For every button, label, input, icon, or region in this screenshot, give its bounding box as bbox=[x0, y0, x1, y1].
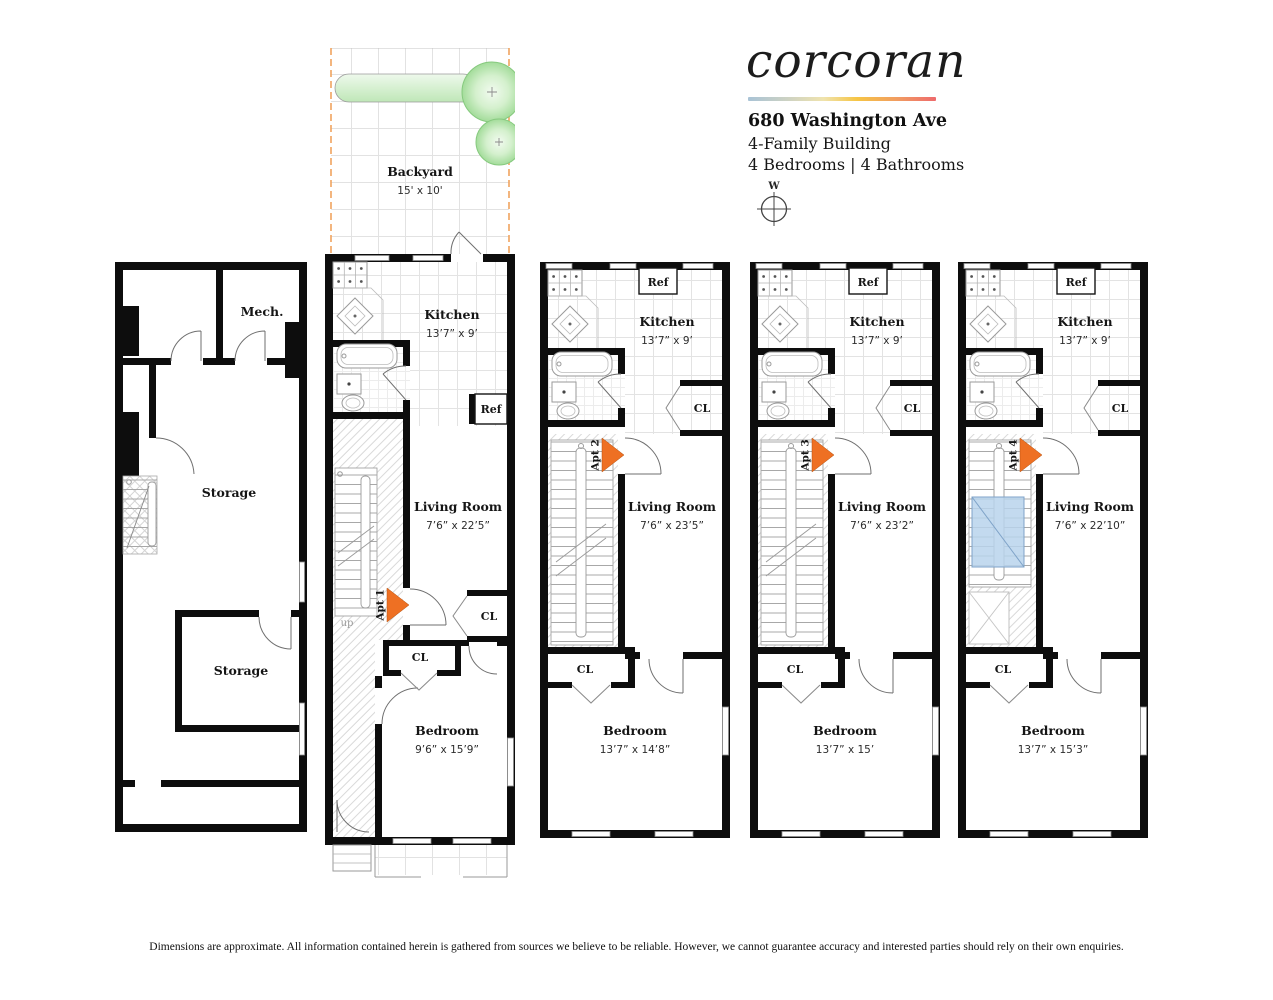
closet-label: CL bbox=[904, 402, 921, 415]
bedroom-dims: 13’7” x 15’3” bbox=[1018, 744, 1089, 756]
kitchen-dims: 13’7” x 9’ bbox=[851, 335, 903, 347]
living-label: Living Room bbox=[414, 499, 502, 514]
entry-marker: Apt 4 bbox=[1008, 438, 1043, 472]
stoop bbox=[333, 845, 371, 871]
bedroom-label: Bedroom bbox=[813, 723, 877, 738]
washbasin-icon bbox=[337, 374, 361, 394]
ref-label: Ref bbox=[858, 276, 880, 289]
closet-label: CL bbox=[787, 663, 804, 676]
living-dims: 7’6” x 23’5” bbox=[640, 520, 704, 532]
kitchen-dims: 13’7” x 9’ bbox=[641, 335, 693, 347]
washbasin-icon bbox=[970, 382, 994, 402]
bedroom-dims: 13’7” x 14’8” bbox=[600, 744, 671, 756]
bathtub-icon bbox=[552, 352, 612, 376]
floorplan-apt2: Ref Apt 2 bbox=[540, 262, 730, 838]
backyard-dims: 15' x 10' bbox=[397, 185, 442, 197]
staircase bbox=[335, 468, 377, 616]
bedroom-dims: 13’7” x 15’ bbox=[816, 744, 874, 756]
living-label: Living Room bbox=[1046, 499, 1134, 514]
backyard: Backyard 15' x 10' bbox=[331, 48, 515, 261]
mech-label: Mech. bbox=[241, 304, 284, 319]
kitchen-label: Kitchen bbox=[849, 314, 904, 329]
porch bbox=[375, 845, 507, 877]
brand-gradient-bar bbox=[748, 97, 936, 101]
listing-header: 680 Washington Ave 4-Family Building 4 B… bbox=[748, 111, 964, 176]
tree-icon bbox=[462, 62, 515, 122]
entry-marker: Apt 1 bbox=[375, 588, 410, 622]
bathtub-icon bbox=[970, 352, 1030, 376]
washbasin-icon bbox=[762, 382, 786, 402]
living-dims: 7’6” x 22’5” bbox=[426, 520, 490, 532]
brand-logo: corcoran bbox=[746, 34, 966, 89]
compass-icon: W bbox=[753, 178, 797, 228]
kitchen-label: Kitchen bbox=[639, 314, 694, 329]
toilet-icon bbox=[557, 403, 579, 419]
stove-icon bbox=[758, 270, 792, 296]
bathtub-icon bbox=[337, 344, 397, 368]
ref-label: Ref bbox=[648, 276, 670, 289]
planter bbox=[335, 74, 477, 102]
entry-marker: Apt 2 bbox=[590, 438, 625, 472]
bedroom-dims: 9’6” x 15’9” bbox=[415, 744, 479, 756]
stove-icon bbox=[333, 262, 367, 288]
stove-icon bbox=[966, 270, 1000, 296]
closet-label: CL bbox=[412, 651, 429, 664]
kitchen-dims: 13’7” x 9’ bbox=[426, 328, 478, 340]
bedroom-label: Bedroom bbox=[603, 723, 667, 738]
kitchen-label: Kitchen bbox=[1057, 314, 1112, 329]
bedroom-label: Bedroom bbox=[415, 723, 479, 738]
closet-label: CL bbox=[995, 663, 1012, 676]
living-label: Living Room bbox=[838, 499, 926, 514]
floorplan-cellar: Mech. Storage Storage bbox=[115, 262, 307, 832]
under-stair-closet bbox=[969, 592, 1009, 644]
backyard-label: Backyard bbox=[387, 164, 453, 179]
closet-label: CL bbox=[694, 402, 711, 415]
floorplan-apt3: Ref Apt 3 bbox=[750, 262, 940, 838]
floorplan-page: corcoran 680 Washington Ave 4-Family Bui… bbox=[0, 0, 1273, 1000]
toilet-icon bbox=[767, 403, 789, 419]
stairs-up-label: up bbox=[341, 618, 354, 629]
staircase bbox=[123, 476, 157, 554]
bedroom-label: Bedroom bbox=[1021, 723, 1085, 738]
apt1-entry-label: Apt 1 bbox=[375, 589, 387, 621]
svg-text:W: W bbox=[767, 181, 780, 192]
building-type: 4-Family Building bbox=[748, 134, 964, 153]
floorplan-apt4: Ref bbox=[958, 262, 1148, 838]
entry-marker: Apt 3 bbox=[800, 438, 835, 472]
living-label: Living Room bbox=[628, 499, 716, 514]
apt3-entry-label: Apt 3 bbox=[800, 439, 812, 471]
apt2-entry-label: Apt 2 bbox=[590, 439, 602, 471]
washbasin-icon bbox=[552, 382, 576, 402]
closet-label: CL bbox=[481, 610, 498, 623]
rooms-summary: 4 Bedrooms | 4 Bathrooms bbox=[748, 155, 964, 174]
bathtub-icon bbox=[762, 352, 822, 376]
living-dims: 7’6” x 23’2” bbox=[850, 520, 914, 532]
apt4-entry-label: Apt 4 bbox=[1008, 439, 1020, 471]
closet-label: CL bbox=[577, 663, 594, 676]
floorplan-apt1: Backyard 15' x 10' bbox=[325, 48, 515, 880]
closet-label: CL bbox=[1112, 402, 1129, 415]
toilet-icon bbox=[975, 403, 997, 419]
living-dims: 7’6” x 22’10” bbox=[1055, 520, 1126, 532]
toilet-icon bbox=[342, 395, 364, 411]
storage-lower-label: Storage bbox=[214, 663, 269, 678]
address: 680 Washington Ave bbox=[748, 111, 964, 131]
storage-upper-label: Storage bbox=[202, 485, 257, 500]
ref-label: Ref bbox=[481, 403, 503, 416]
stove-icon bbox=[548, 270, 582, 296]
disclaimer-text: Dimensions are approximate. All informat… bbox=[0, 941, 1273, 953]
kitchen-dims: 13’7” x 9’ bbox=[1059, 335, 1111, 347]
skylight bbox=[972, 497, 1024, 567]
kitchen-label: Kitchen bbox=[424, 307, 479, 322]
ref-label: Ref bbox=[1066, 276, 1088, 289]
